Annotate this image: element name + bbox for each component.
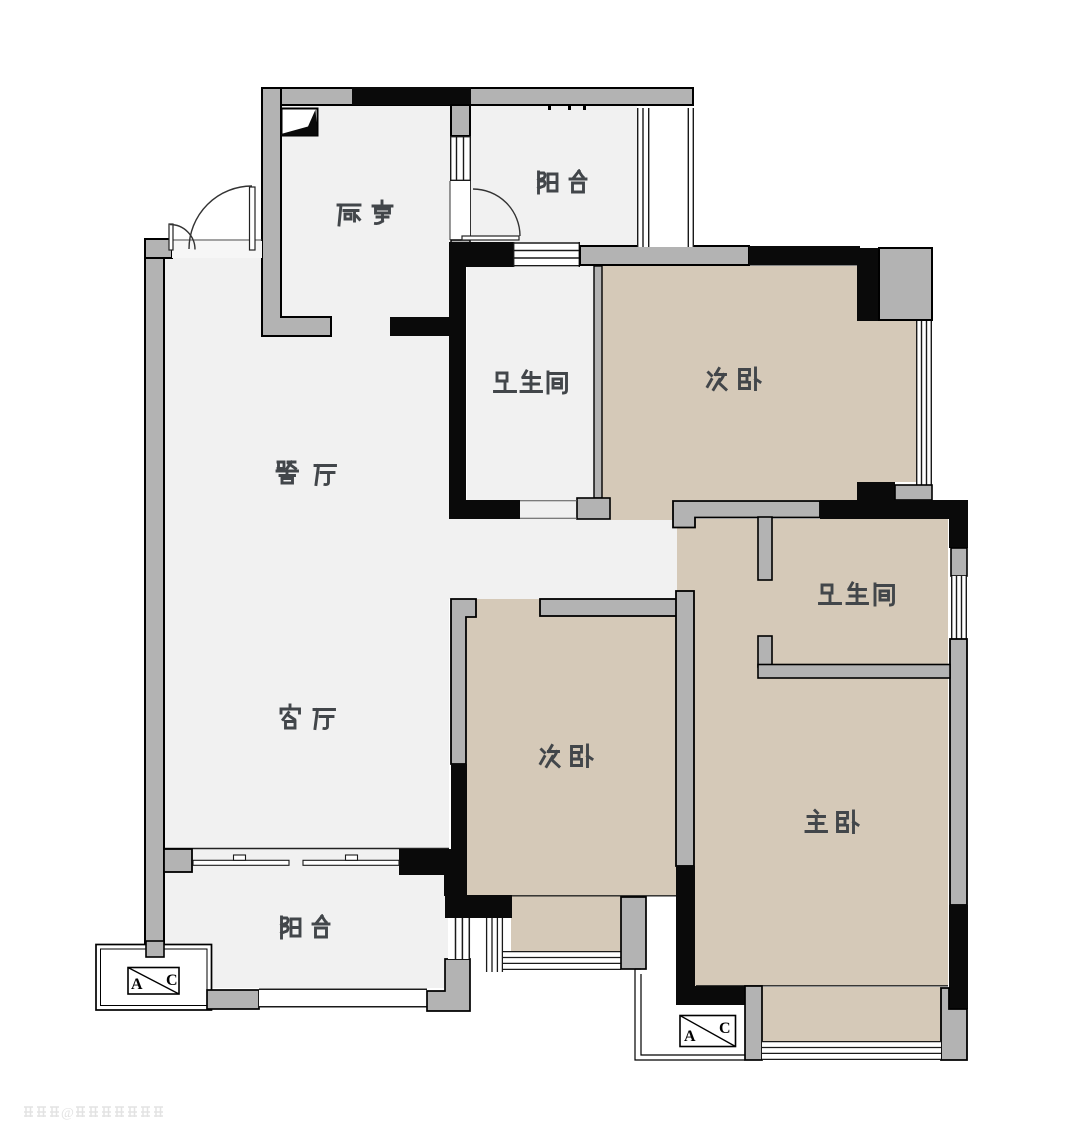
svg-text:C: C	[719, 1020, 731, 1037]
svg-text:A: A	[684, 1028, 696, 1045]
svg-text:A: A	[131, 976, 143, 993]
svg-text:@: @	[61, 1106, 74, 1121]
svg-text:C: C	[166, 972, 178, 989]
